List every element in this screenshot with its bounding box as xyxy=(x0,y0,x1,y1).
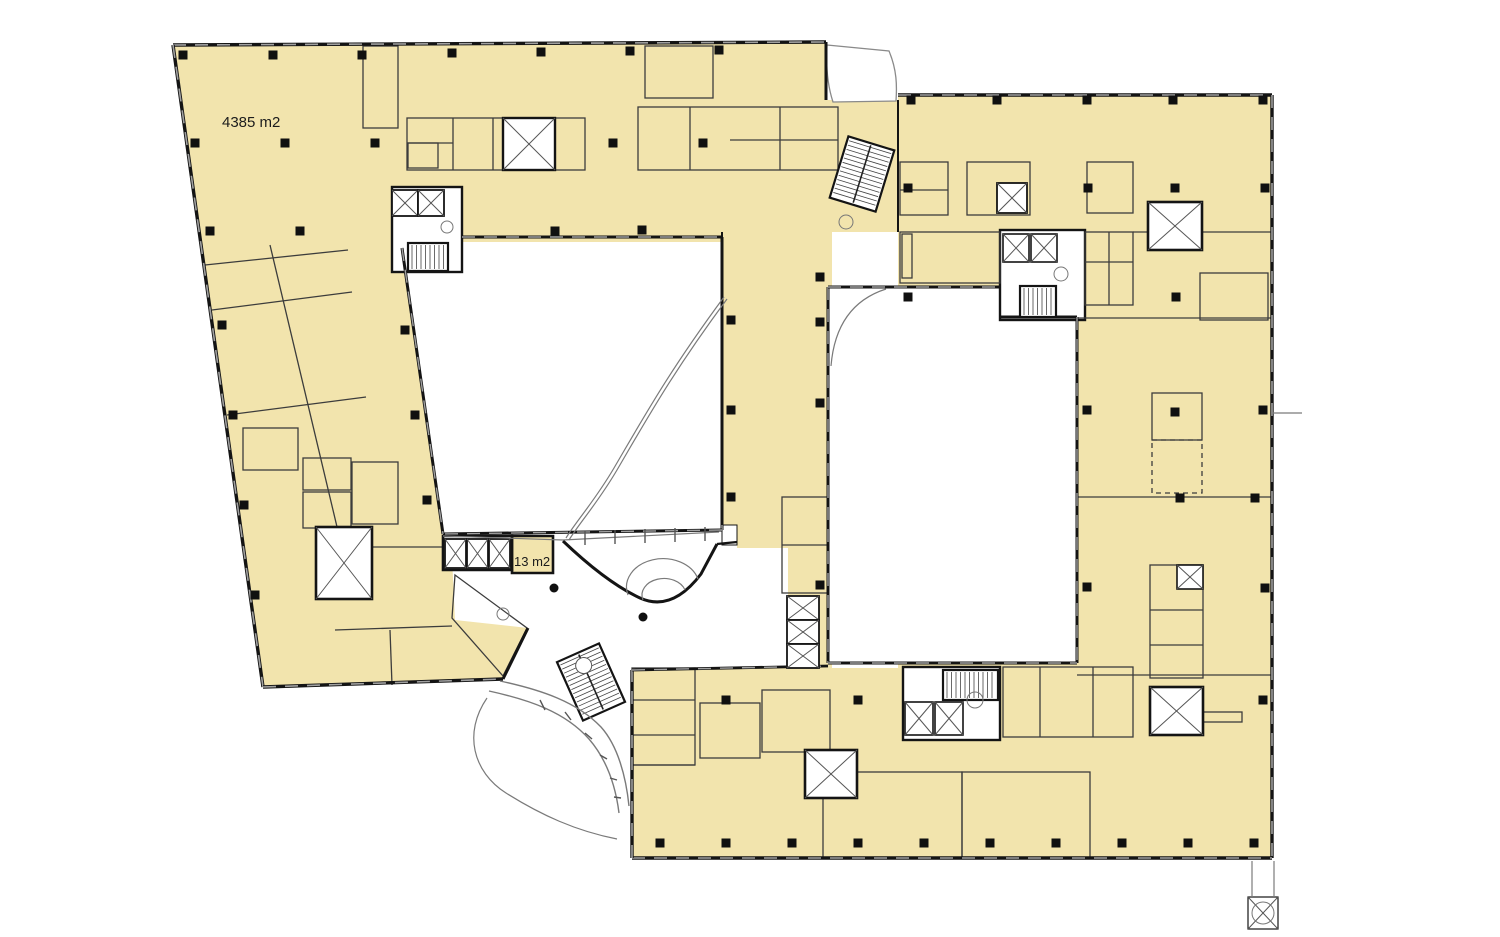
terrace-skylight-icon xyxy=(1248,897,1278,929)
floor-plan-svg: 4385 m213 m2 xyxy=(0,0,1500,937)
column xyxy=(699,139,708,148)
column xyxy=(281,139,290,148)
shaft-rt-big-icon xyxy=(1148,202,1202,250)
column xyxy=(1118,839,1127,848)
column xyxy=(727,493,736,502)
column xyxy=(920,839,929,848)
column xyxy=(904,184,913,193)
column xyxy=(854,839,863,848)
shaft-bottom-right-icon xyxy=(1150,687,1203,735)
column xyxy=(816,581,825,590)
column-round xyxy=(639,613,648,622)
shaft-alcove-2-icon xyxy=(418,190,444,216)
column xyxy=(423,496,432,505)
lift-core-2-icon xyxy=(1031,234,1057,262)
lift-bcore-2-icon xyxy=(935,702,963,735)
column xyxy=(1169,96,1178,105)
column xyxy=(240,501,249,510)
column xyxy=(609,139,618,148)
column xyxy=(1250,839,1259,848)
column xyxy=(251,591,260,600)
column xyxy=(715,46,724,55)
lift-core-1-icon xyxy=(1003,234,1029,262)
column xyxy=(1083,583,1092,592)
column xyxy=(854,696,863,705)
column xyxy=(269,51,278,60)
column xyxy=(722,839,731,848)
lift-lobby-2-icon xyxy=(467,539,488,568)
site-curve xyxy=(474,698,617,839)
column xyxy=(727,406,736,415)
column xyxy=(1052,839,1061,848)
stair-alcove-icon xyxy=(408,243,448,271)
lift-lobby-3-icon xyxy=(489,539,510,568)
column xyxy=(656,839,665,848)
shaft-bottom-mid-icon xyxy=(805,750,857,798)
stair-right-core-icon xyxy=(1020,286,1056,317)
floor-plan-canvas: 4385 m213 m2 xyxy=(0,0,1500,937)
column xyxy=(1083,406,1092,415)
column xyxy=(993,96,1002,105)
right-courtyard xyxy=(828,287,1077,663)
column xyxy=(904,293,913,302)
column xyxy=(1261,584,1270,593)
column xyxy=(179,51,188,60)
lift-corridor-1-icon xyxy=(787,596,819,620)
column xyxy=(626,47,635,56)
shaft-rband-small-icon xyxy=(1177,565,1203,589)
label-area-total: 4385 m2 xyxy=(222,114,280,131)
column xyxy=(1259,406,1268,415)
column xyxy=(191,139,200,148)
column xyxy=(448,49,457,58)
lift-corridor-3-icon xyxy=(787,644,819,668)
floor-plan-page: 4385 m213 m2 xyxy=(0,0,1500,937)
shaft-rt-small-icon xyxy=(997,183,1027,213)
column xyxy=(1259,696,1268,705)
column xyxy=(296,227,305,236)
tick-mark xyxy=(614,797,621,798)
column xyxy=(1251,494,1260,503)
column xyxy=(358,51,367,60)
column xyxy=(411,411,420,420)
column xyxy=(727,316,736,325)
column xyxy=(1184,839,1193,848)
stair-bottom-core-icon xyxy=(943,670,998,700)
lift-lobby-1-icon xyxy=(445,539,466,568)
lift-bcore-1-icon xyxy=(905,702,933,735)
column xyxy=(537,48,546,57)
column xyxy=(371,139,380,148)
column xyxy=(206,227,215,236)
column xyxy=(1084,184,1093,193)
shaft-arm-big-icon xyxy=(316,527,372,599)
column xyxy=(816,318,825,327)
column xyxy=(907,96,916,105)
lift-corridor-2-icon xyxy=(787,620,819,644)
entrance-canopy xyxy=(827,45,897,102)
column xyxy=(1176,494,1185,503)
label-area-small: 13 m2 xyxy=(514,554,550,569)
column xyxy=(401,326,410,335)
tick-mark xyxy=(540,700,545,710)
column xyxy=(816,273,825,282)
column xyxy=(1171,184,1180,193)
column xyxy=(638,226,647,235)
column-round xyxy=(550,584,559,593)
column xyxy=(1171,408,1180,417)
shaft-alcove-1-icon xyxy=(392,190,418,216)
column xyxy=(788,839,797,848)
shaft-left-core-icon xyxy=(503,118,555,170)
column xyxy=(1259,96,1268,105)
column xyxy=(1083,96,1092,105)
column xyxy=(722,696,731,705)
column xyxy=(1172,293,1181,302)
column xyxy=(816,399,825,408)
column xyxy=(551,227,560,236)
column xyxy=(229,411,238,420)
column xyxy=(218,321,227,330)
column xyxy=(1261,184,1270,193)
column xyxy=(986,839,995,848)
